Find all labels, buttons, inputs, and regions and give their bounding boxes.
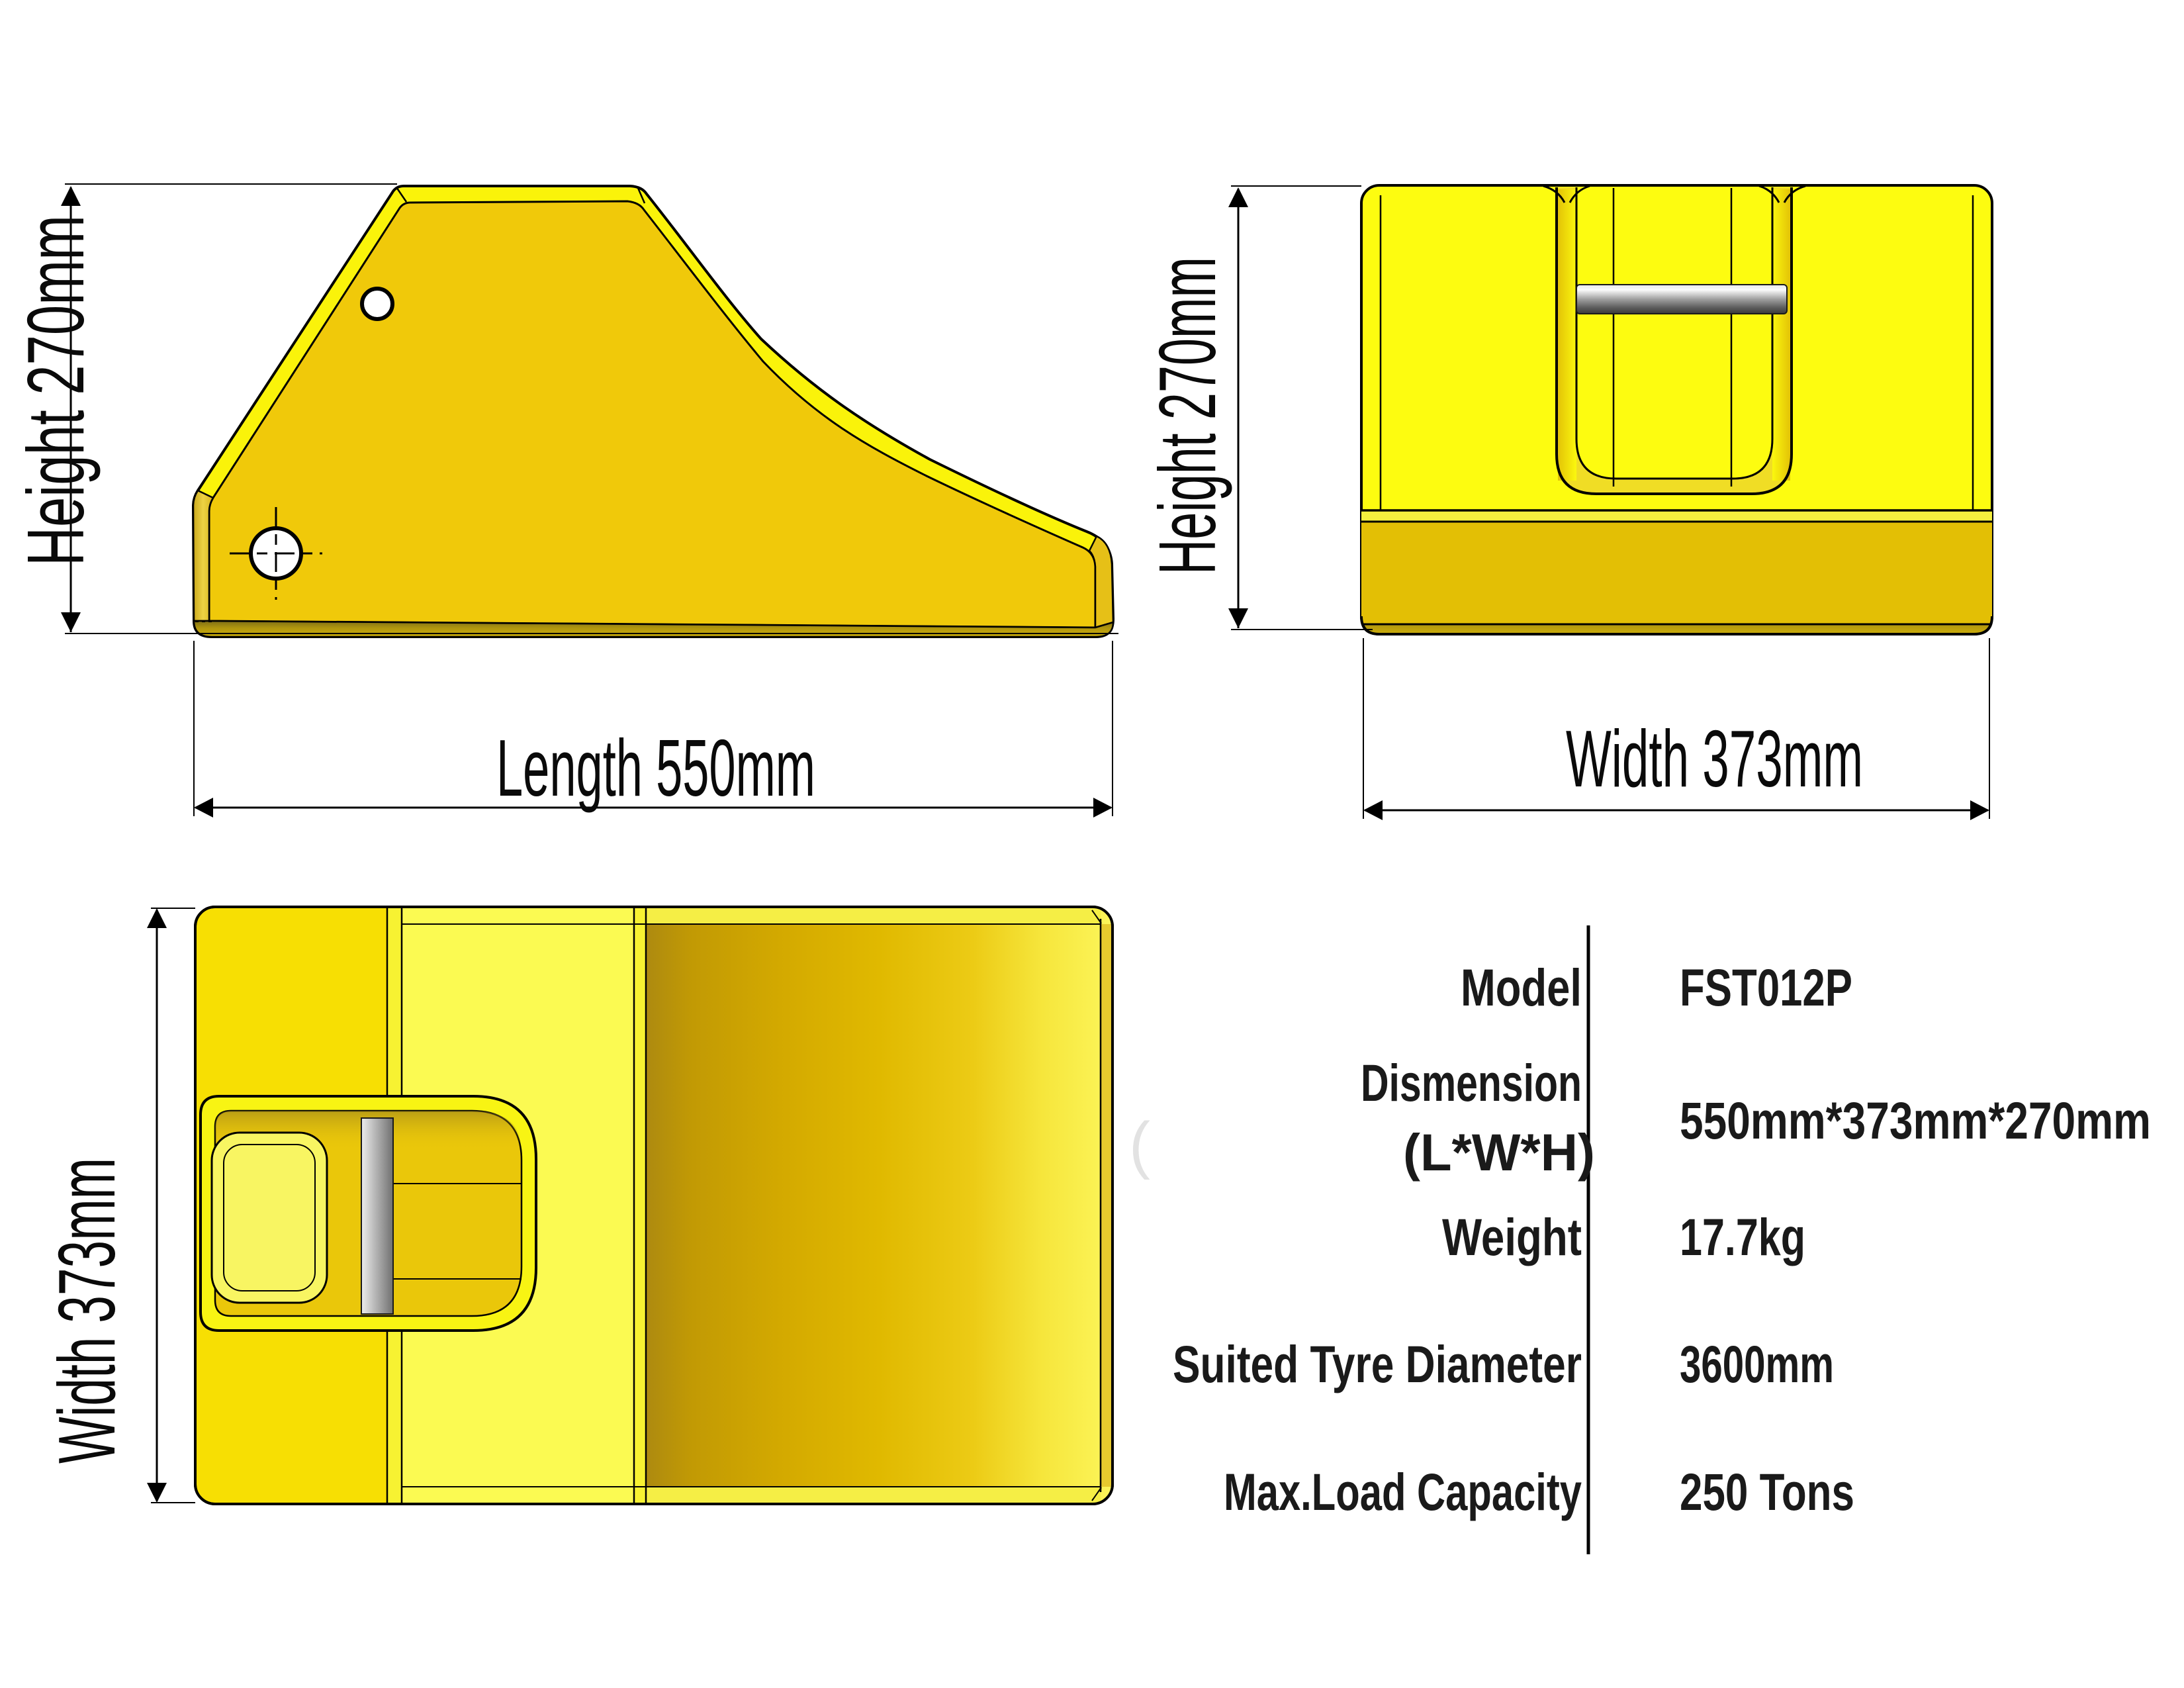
svg-text:(: ( [1129, 1109, 1150, 1180]
svg-text:Dismension: Dismension [1361, 1053, 1582, 1112]
svg-text:Suited Tyre Diameter: Suited Tyre Diameter [1173, 1335, 1582, 1393]
svg-text:Max.Load Capacity: Max.Load Capacity [1224, 1462, 1582, 1521]
svg-text:550mm*373mm*270mm: 550mm*373mm*270mm [1680, 1091, 2151, 1150]
svg-text:250 Tons: 250 Tons [1680, 1462, 1854, 1521]
svg-text:Height 270mm: Height 270mm [1142, 257, 1232, 575]
svg-text:Width 373mm: Width 373mm [42, 1158, 132, 1464]
svg-text:Weight: Weight [1442, 1207, 1582, 1266]
svg-text:Height 270mm: Height 270mm [11, 215, 101, 566]
svg-text:(L*W*H): (L*W*H) [1403, 1123, 1595, 1182]
svg-text:Model: Model [1461, 958, 1582, 1017]
svg-text:Width 373mm: Width 373mm [1566, 714, 1863, 804]
svg-text:Length 550mm: Length 550mm [496, 723, 815, 813]
svg-text:17.7kg: 17.7kg [1680, 1207, 1805, 1266]
svg-text:FST012P: FST012P [1680, 958, 1852, 1017]
svg-text:3600mm: 3600mm [1680, 1335, 1834, 1393]
